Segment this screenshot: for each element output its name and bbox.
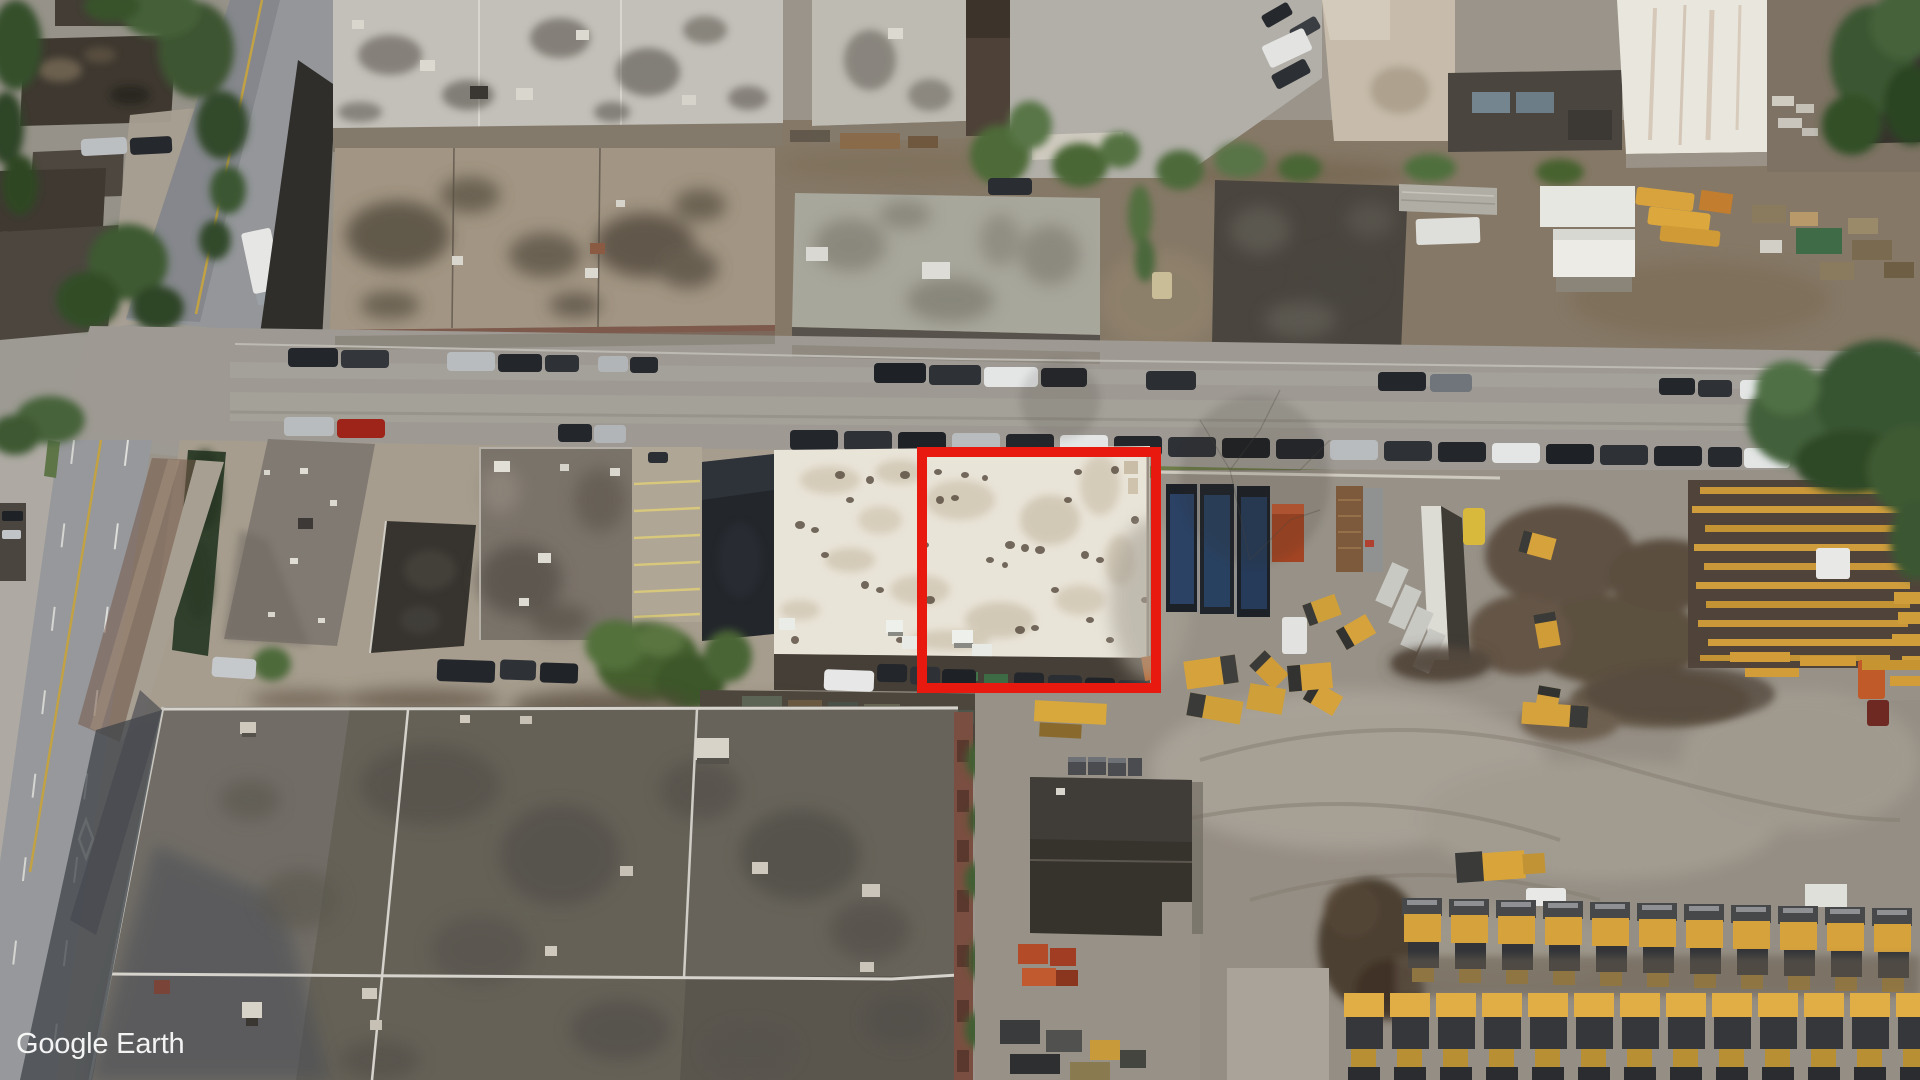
svg-text:Google Earth: Google Earth <box>16 1028 185 1060</box>
